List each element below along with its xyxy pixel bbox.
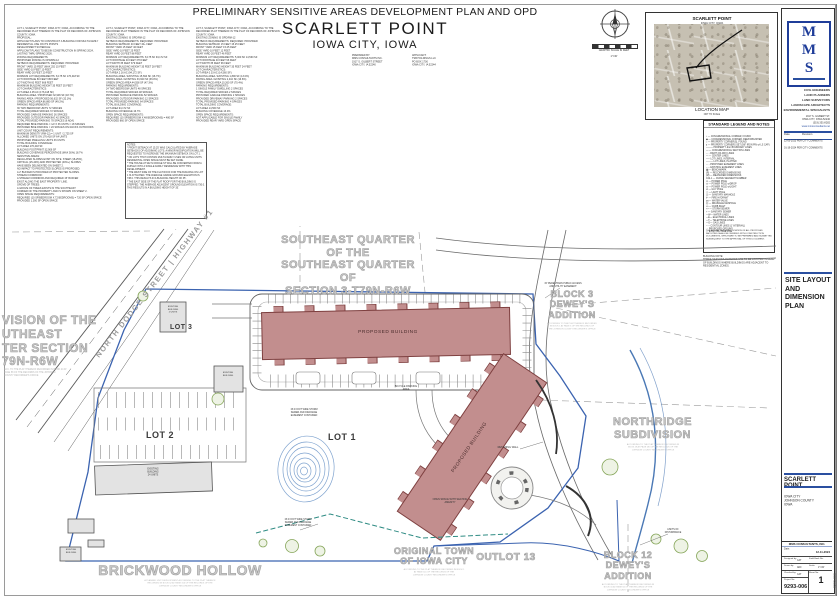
legal-description-block-3: LOT 3, SCARLETT POINT, IOWA CITY, IOWA, … bbox=[196, 27, 281, 137]
mms-logo-letter-s: S bbox=[789, 59, 829, 77]
edge-project-number: 9293-006 bbox=[833, 548, 837, 588]
plan-sheet: PRELIMINARY SENSITIVE AREAS DEVELOPMENT … bbox=[0, 0, 840, 600]
location-map: SCARLETT POINT IOWA CITY, IOWA LOCATION … bbox=[645, 12, 778, 120]
firm-block: MMS CONSULTANTS, INC. Date: 12-11-2024 D… bbox=[782, 541, 832, 593]
applicant-block: APPLICANT: TSB HOLDINGS LLC PO BOX 1700 … bbox=[412, 54, 468, 80]
location-callout-sub: IOWA CITY, IOWA bbox=[646, 22, 777, 29]
label-brickwood: BRICKWOOD HOLLOW bbox=[90, 562, 270, 578]
north-roads bbox=[436, 238, 776, 261]
label-northridge: NORTHRIDGE SUBDIVISION bbox=[585, 416, 720, 441]
annotation-limits: LIMITS OF DISTURBANCE bbox=[648, 528, 698, 540]
label-lot1: LOT 1 bbox=[328, 432, 356, 442]
annotation-retaining-wall: RETAINING WALL bbox=[478, 446, 538, 452]
label-lot2: LOT 2 bbox=[146, 430, 174, 440]
retaining-walls bbox=[536, 380, 591, 536]
label-se-quarter: SOUTHEAST QUARTER OF THE SOUTHEAST QUART… bbox=[238, 234, 458, 297]
titleblock-project-location: IOWA CITY JOHNSON COUNTY IOWA bbox=[784, 495, 832, 520]
label-block12: BLOCK 12 DEWEY'S ADDITION bbox=[588, 550, 668, 581]
sheet-title: SITE LAYOUT AND DIMENSION PLAN bbox=[785, 277, 833, 311]
label-block12-note: ACCORDING TO THE PLAT THEREOF RECORDED I… bbox=[583, 583, 673, 599]
mms-logo-letter-m2: M bbox=[789, 41, 829, 59]
revision-col-revision: Revision bbox=[802, 133, 832, 140]
project-no-label: Project No: bbox=[784, 578, 808, 584]
prepared-by-block: PREPARED BY: MMS CONSULTANTS INC. 1917 S… bbox=[352, 54, 408, 80]
existing-building-lot2-label: EXISTING BUILDING 24 UNITS bbox=[123, 468, 183, 486]
legal-description-block-1: LOT 1, SCARLETT POINT, IOWA CITY, IOWA, … bbox=[17, 27, 102, 227]
annotation-bike-parking: BICYCLE PARKING AREA bbox=[376, 385, 436, 398]
revision-col-date: Date bbox=[784, 133, 802, 140]
project-no-value: 9293-006 bbox=[784, 584, 814, 590]
sheet-title-rule bbox=[784, 272, 832, 274]
project-rule-bottom bbox=[784, 486, 832, 488]
location-map-caption-sub: NOT TO SCALE bbox=[646, 113, 777, 119]
north-arrow-icon bbox=[596, 8, 634, 42]
location-map-aerial bbox=[654, 24, 769, 107]
revision-table: Date Revision 12-05-2023 PER CITY COMMEN… bbox=[784, 131, 832, 153]
label-west-plat-note: ACC. TO THE PLAT THEREOF RECORDED IN BOO… bbox=[4, 368, 114, 386]
plaza-circle bbox=[491, 467, 533, 509]
notes-box: NOTES: * FRONT SETBACK AT 15.25' WAS CAL… bbox=[125, 142, 207, 219]
label-outlot13: OUTLOT 13 bbox=[466, 552, 546, 564]
sheet-edge-line bbox=[836, 4, 837, 596]
label-lot3: LOT 3 bbox=[170, 324, 192, 331]
existing-building-mid-label: EXISTING BUILDING bbox=[198, 371, 258, 382]
mms-logo-letter-m1: M bbox=[789, 23, 829, 41]
mms-logo-bar bbox=[793, 78, 825, 80]
graphic-scale-value: 1"=30' bbox=[580, 55, 648, 61]
label-brickwood-note: A PLANNED UNIT DEVELOPMENT ACCORDING TO … bbox=[95, 579, 265, 595]
proposed-building-north-label: PROPOSED BUILDING bbox=[326, 329, 450, 341]
revision-row-2: 01-19-2024 PER CITY COMMENTS bbox=[784, 147, 832, 153]
annotation-access-easement: 15' PEDESTRIAN PUBLIC ACCESS AND UTILITY… bbox=[528, 282, 598, 294]
annotation-storm-easement-1: 15.0 FOOT WIDE STORM SEWER AND DRAINAGE … bbox=[266, 518, 330, 536]
location-callout-arrow bbox=[696, 30, 742, 68]
annotation-plaza: OPEN SPACE WITH SEATING AMENITY bbox=[418, 498, 482, 511]
project-rule-top bbox=[784, 473, 832, 475]
label-northridge-note: ACCORDING TO THE PLAT THEREOF RECORDED I… bbox=[590, 443, 715, 459]
existing-building-lot3-label: EXISTING BUILDING 2 UNITS bbox=[143, 305, 203, 322]
title-block-strip: M M S CIVIL ENGINEERS LAND PLANNERS LAND… bbox=[781, 8, 835, 594]
east-curving-street bbox=[529, 230, 612, 560]
field-book: Field Book No: bbox=[809, 557, 831, 563]
sheet-number: 1 bbox=[812, 575, 830, 585]
label-block3-note: ACCORDING TO THE PLAT THEREOF RECORDED I… bbox=[527, 322, 617, 338]
mms-logo: M M S bbox=[787, 21, 831, 87]
legend-title: STANDARD LEGEND AND NOTES bbox=[704, 122, 774, 134]
page-title: PRELIMINARY SENSITIVE AREAS DEVELOPMENT … bbox=[130, 6, 600, 18]
annotation-storm-easement-2: 15.0 FOOT WIDE STORM SEWER AND DRAINAGE … bbox=[272, 408, 336, 426]
stormwater-basin-contours bbox=[274, 432, 339, 505]
location-site-outline bbox=[687, 65, 711, 81]
legal-description-block-2: LOT 2, SCARLETT POINT, IOWA CITY, IOWA, … bbox=[106, 27, 191, 141]
existing-building-sw-label: EXISTING BUILDING bbox=[41, 548, 101, 559]
label-original-town-note: ACCORDING TO THE PLAT THEREOF RECORDED I… bbox=[384, 568, 484, 584]
